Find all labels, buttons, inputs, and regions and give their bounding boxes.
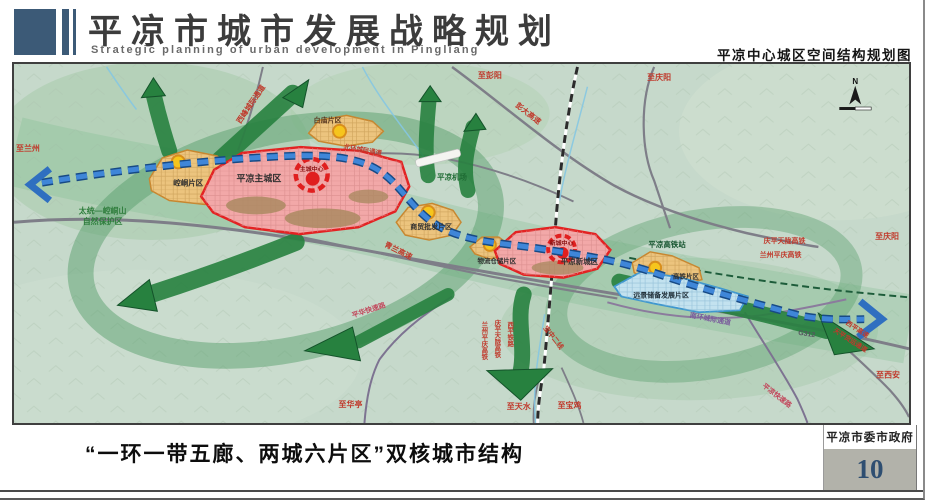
map-caption: “一环一带五廊、两城六片区”双核城市结构 (85, 438, 524, 468)
label-lzpq-hsr-vertical: 兰州平庆高铁 (480, 320, 488, 361)
label-kongtong-zone: 崆峒片区 (173, 178, 203, 188)
label-reserve-zone: 远景储备发展片区 (633, 290, 689, 299)
main-core-dot (306, 172, 320, 186)
north-arrow-label: N (852, 77, 858, 86)
label-to-tianshui: 至天水 (507, 401, 531, 411)
label-trade-zone: 商贸批发片区 (410, 222, 452, 231)
label-lzpq-hsr: 兰州平庆高铁 (760, 250, 802, 259)
label-qptl-hsr-vertical: 庆平天陇高铁 (493, 318, 501, 359)
page-number: 10 (824, 449, 916, 490)
header-accent-bar (62, 9, 69, 55)
label-main-city-zone: 平凉主城区 (237, 173, 282, 184)
label-to-huating: 至华亭 (339, 399, 363, 409)
label-qptl-hsr: 庆平天陇高铁 (763, 236, 806, 245)
header-accent-square (14, 9, 56, 55)
label-to-lanzhou: 至兰州 (16, 143, 40, 153)
label-new-core: 新城中心 (550, 239, 574, 247)
label-logistics-zone: 物流仓储片区 (477, 256, 516, 265)
label-nature-reserve-1: 太统—崆峒山 (79, 205, 127, 215)
center-marker (333, 125, 346, 138)
label-to-qingyang-right: 至庆阳 (875, 231, 899, 241)
header-accent-bar-thin (73, 9, 76, 55)
label-to-xian: 至西安 (876, 370, 900, 380)
label-to-baoji: 至宝鸡 (558, 400, 582, 410)
label-xiping-rail-vertical: 西平铁路 (506, 321, 514, 348)
label-airport: 平凉机场 (437, 172, 467, 182)
label-baimiao-zone: 白庙片区 (314, 115, 342, 124)
page: 平凉市城市发展战略规划 Strategic planning of urban … (0, 0, 925, 500)
label-main-core: 主城中心 (300, 165, 324, 173)
planning-map: 至兰州 西峰城际通道 至彭阳 至庆阳 彭大高速 白庙片区 北环城际通道 平凉机场… (12, 62, 911, 425)
page-bottom-rule (0, 490, 925, 492)
credit-box: 平凉市委市政府 10 (823, 425, 917, 490)
label-hsr-station: 平凉高铁站 (648, 239, 686, 249)
scale-bar-dark (839, 107, 855, 110)
label-hsr-zone: 高铁片区 (673, 272, 699, 281)
credit-text: 平凉市委市政府 (824, 425, 916, 449)
label-new-city-zone: 平凉新城区 (561, 256, 599, 266)
map-canvas: 至兰州 西峰城际通道 至彭阳 至庆阳 彭大高速 白庙片区 北环城际通道 平凉机场… (14, 64, 909, 423)
scale-bar-light (855, 107, 871, 110)
map-subtitle: 平凉中心城区空间结构规划图 (640, 44, 912, 64)
label-to-qingyang-top: 至庆阳 (647, 72, 671, 82)
label-to-pengyang: 至彭阳 (478, 70, 502, 80)
page-title-english: Strategic planning of urban development … (91, 44, 480, 56)
label-nature-reserve-2: 自然保护区 (83, 216, 123, 226)
